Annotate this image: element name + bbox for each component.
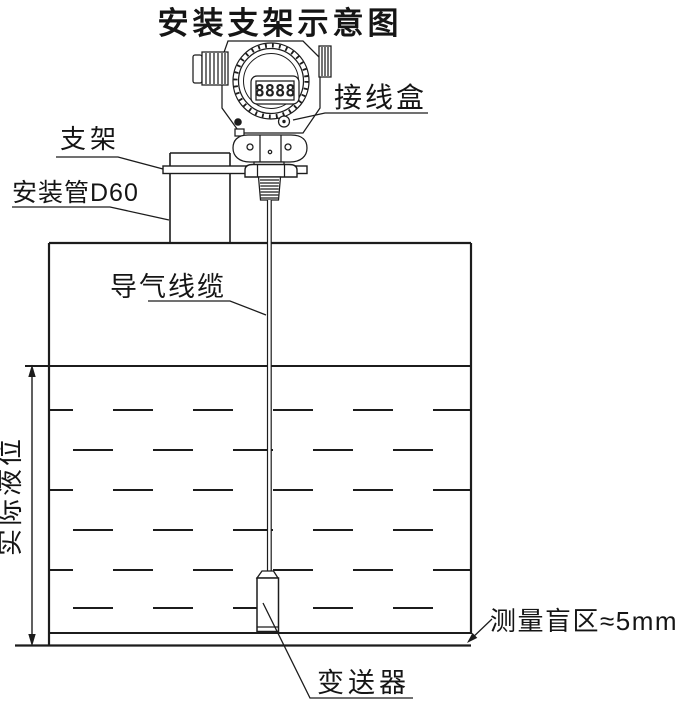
actual-level-label: 实际液位 [0, 436, 25, 556]
diagram-title: 安装支架示意图 [158, 6, 403, 41]
blind-zone-label: 测量盲区≈5mm [490, 606, 678, 636]
diagram-svg: 8888 [0, 0, 700, 708]
probe-body [257, 578, 279, 632]
cover-clamp [319, 46, 331, 77]
transmitter-head: 8888 [193, 41, 331, 200]
process-connection-yoke [233, 135, 307, 167]
level-dimension-arrow [28, 365, 35, 647]
mounting-pipe-label: 安装管D60 [12, 179, 139, 207]
cable-gland [193, 52, 228, 85]
lcd-display: 8888 [251, 76, 299, 104]
transmitter-label: 变送器 [317, 668, 410, 698]
junction-box-label: 接线盒 [334, 82, 427, 113]
probe-taper [257, 571, 278, 578]
screw-left [234, 118, 242, 126]
bracket-label: 支架 [60, 124, 120, 154]
air-cable-leader [148, 301, 266, 315]
air-cable-label: 导气线缆 [110, 272, 226, 302]
installation-diagram: 8888 [0, 0, 700, 708]
mounting-pipe-leader [12, 207, 169, 220]
bracket-leader [56, 157, 163, 169]
lcd-reading: 8888 [255, 82, 296, 102]
hex-nut [245, 165, 297, 178]
air-vent-cable [267, 200, 271, 571]
tank [15, 243, 471, 646]
probe [257, 571, 279, 632]
screw-right-pin [282, 120, 285, 123]
threaded-stub [259, 177, 281, 200]
